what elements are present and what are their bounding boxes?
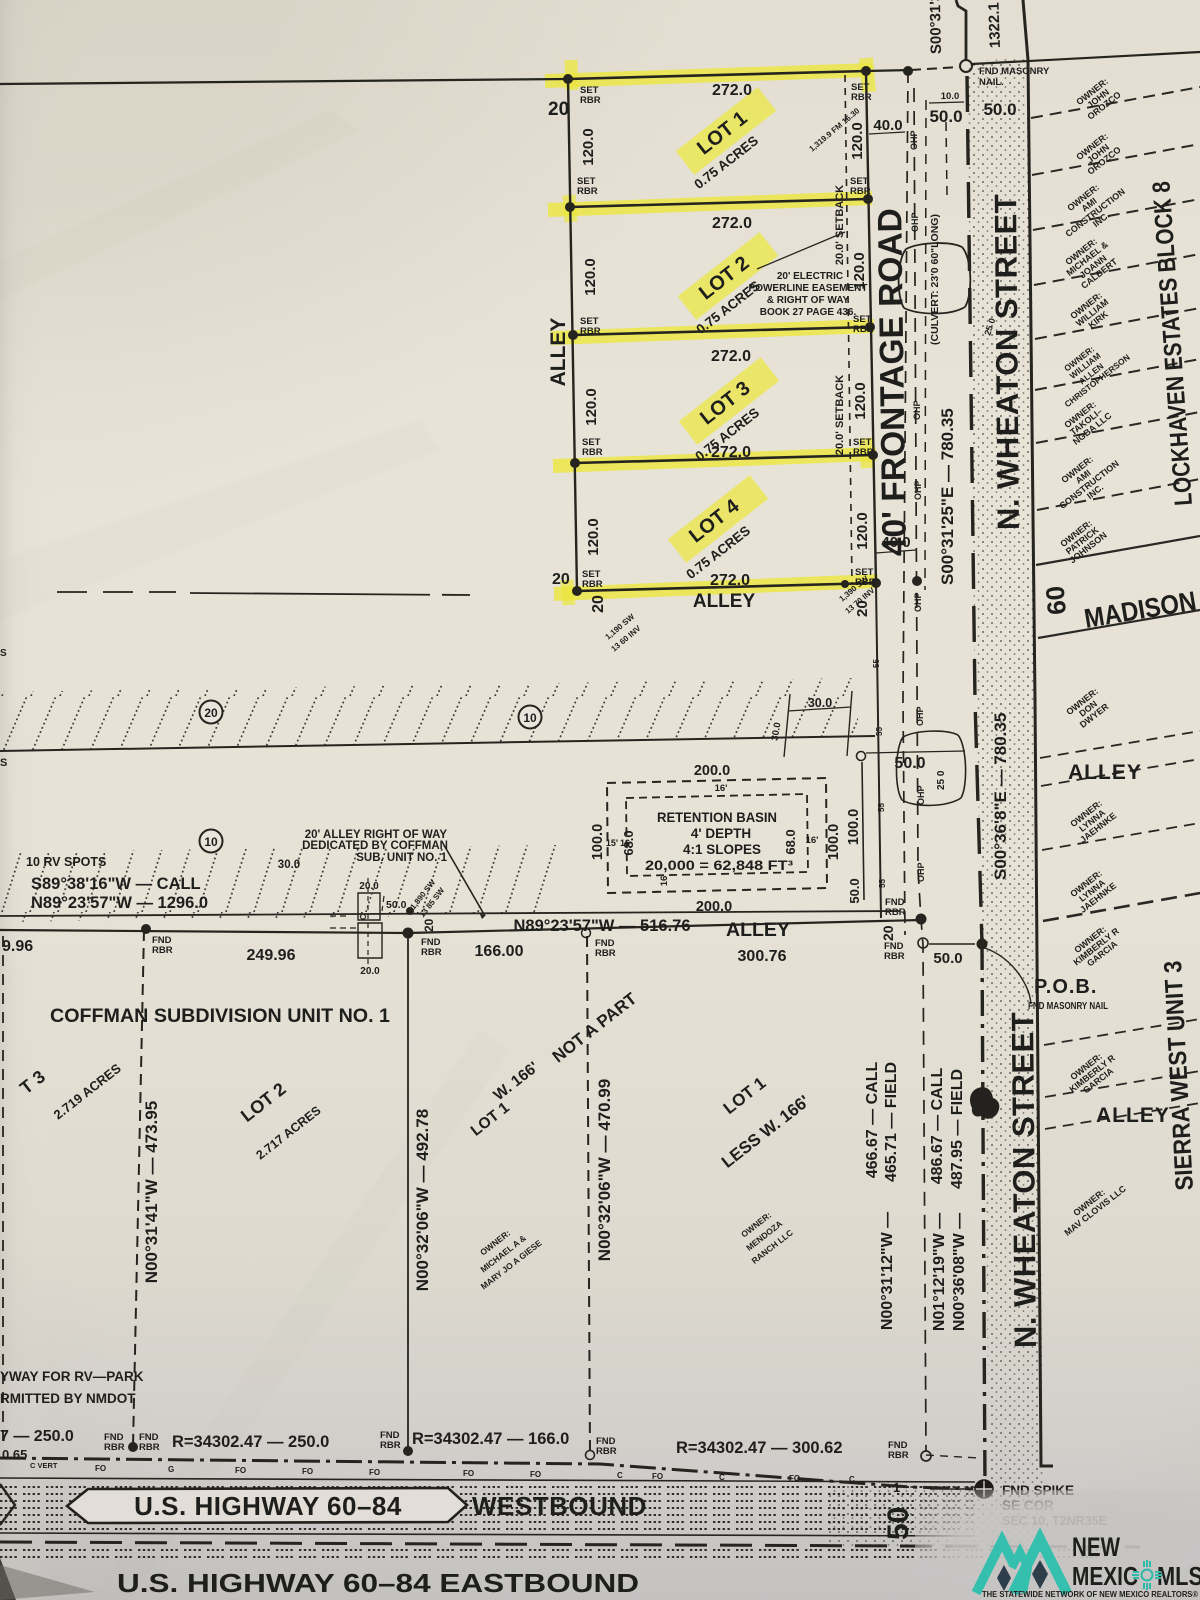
svg-text:120.0: 120.0: [583, 388, 600, 426]
svg-text:FO: FO: [530, 1470, 541, 1479]
svg-text:166.00: 166.00: [475, 943, 524, 960]
svg-text:G: G: [168, 1465, 174, 1474]
svg-text:N00°32'06"W — 492.78: N00°32'06"W — 492.78: [413, 1109, 432, 1291]
svg-text:20,000 = 62,848 FT³: 20,000 = 62,848 FT³: [645, 858, 794, 873]
svg-text:16': 16': [715, 783, 728, 794]
svg-text:272.0: 272.0: [712, 215, 752, 232]
svg-text:N00°32'06"W — 470.99: N00°32'06"W — 470.99: [595, 1079, 614, 1261]
svg-text:120.0: 120.0: [849, 122, 866, 160]
svg-text:20: 20: [552, 571, 570, 588]
svg-text:OHP: OHP: [915, 706, 925, 726]
svg-text:RBR: RBR: [582, 579, 603, 590]
svg-text:OHP: OHP: [909, 130, 919, 150]
svg-text:100.0: 100.0: [826, 824, 842, 860]
svg-text:272.0: 272.0: [711, 348, 751, 365]
svg-text:ALLEY: ALLEY: [726, 919, 790, 941]
svg-text:ALLEY: ALLEY: [693, 591, 756, 612]
svg-text:120.0: 120.0: [580, 128, 597, 166]
svg-text:20: 20: [880, 925, 896, 941]
svg-text:N00°31'41"W — 473.95: N00°31'41"W — 473.95: [142, 1101, 161, 1283]
svg-text:20.0' SETBACK: 20.0' SETBACK: [834, 375, 846, 455]
svg-text:55: 55: [878, 879, 887, 888]
svg-text:U.S. HIGHWAY 60–84 EASTBOUN: U.S. HIGHWAY 60–84 EASTBOUND: [117, 1568, 639, 1598]
svg-text:RBR: RBR: [596, 1446, 617, 1457]
svg-text:DEDICATED BY COFFMAN: DEDICATED BY COFFMAN: [302, 840, 448, 852]
svg-text:10.0: 10.0: [941, 91, 960, 102]
svg-text:RBR: RBR: [850, 186, 871, 197]
svg-text:C VERT: C VERT: [30, 1461, 58, 1470]
svg-text:20' ELECTRIC: 20' ELECTRIC: [777, 271, 843, 282]
svg-text:THE STATEWIDE NETWORK OF NEW M: THE STATEWIDE NETWORK OF NEW MEXICO REAL…: [982, 1589, 1199, 1599]
svg-text:RBR: RBR: [580, 95, 601, 106]
svg-text:RBR: RBR: [853, 324, 874, 335]
svg-text:FND MASONRY: FND MASONRY: [979, 66, 1050, 77]
svg-text:RBR: RBR: [139, 1442, 160, 1453]
svg-text:FO: FO: [95, 1464, 106, 1473]
svg-text:R=34302.47 — 250.0: R=34302.47 — 250.0: [172, 1433, 329, 1451]
svg-text:40.0: 40.0: [873, 117, 902, 134]
svg-text:N. WHEATON STREET: N. WHEATON STREET: [1005, 1012, 1043, 1349]
svg-text:RETENTION BASIN: RETENTION BASIN: [657, 809, 777, 825]
svg-text:50.0: 50.0: [386, 899, 407, 911]
svg-text:R=34302.47 — 300.62: R=34302.47 — 300.62: [676, 1439, 843, 1457]
svg-text:OHP: OHP: [913, 592, 923, 612]
svg-text:55: 55: [877, 803, 886, 812]
svg-text:1322.1: 1322.1: [985, 2, 1004, 48]
svg-text:FO: FO: [369, 1468, 380, 1477]
svg-text:N89°23'57"W — 1296.0: N89°23'57"W — 1296.0: [31, 894, 208, 912]
svg-text:20: 20: [854, 600, 871, 617]
svg-text:50.0: 50.0: [983, 100, 1016, 119]
svg-text:25 0: 25 0: [936, 770, 947, 790]
svg-text:465.71 — FIELD: 465.71 — FIELD: [883, 1062, 900, 1182]
svg-text:200.0: 200.0: [696, 899, 732, 915]
svg-text:OHP: OHP: [916, 862, 926, 882]
svg-text:N00°31'12"W —: N00°31'12"W —: [879, 1212, 896, 1330]
svg-text:N. WHEATON STREET: N. WHEATON STREET: [988, 194, 1026, 531]
svg-text:30.0: 30.0: [278, 859, 300, 871]
svg-text:20.0: 20.0: [360, 966, 380, 977]
svg-text:POWERLINE EASEMENT: POWERLINE EASEMENT: [749, 283, 868, 294]
svg-text:16: 16: [620, 838, 630, 848]
svg-text:4:1 SLOPES: 4:1 SLOPES: [683, 842, 761, 857]
svg-text:55: 55: [875, 727, 884, 736]
svg-text:S00°31'25"E — 780.35: S00°31'25"E — 780.35: [938, 408, 957, 585]
svg-text:FO: FO: [235, 1466, 246, 1475]
svg-text:NEW: NEW: [1072, 1532, 1120, 1562]
svg-text:ALLEY: ALLEY: [1068, 761, 1142, 784]
svg-text:FND MASONRY NAIL: FND MASONRY NAIL: [1028, 1000, 1108, 1012]
svg-text:0.65: 0.65: [2, 1447, 27, 1462]
svg-text:RBR: RBR: [421, 947, 442, 958]
svg-text:RBR: RBR: [853, 447, 874, 458]
svg-text:OHP: OHP: [912, 400, 922, 420]
svg-text:C: C: [617, 1471, 623, 1480]
svg-text:120.0: 120.0: [582, 258, 599, 296]
svg-text:RBR: RBR: [580, 326, 601, 337]
svg-text:20.0: 20.0: [359, 881, 379, 892]
svg-text:RBR: RBR: [582, 447, 603, 458]
svg-text:WESTBOUND: WESTBOUND: [472, 1491, 647, 1521]
svg-text:FO: FO: [652, 1472, 663, 1481]
svg-text:16: 16: [659, 876, 670, 887]
svg-text:R=34302.47 — 166.0: R=34302.47 — 166.0: [412, 1430, 569, 1448]
svg-text:U.S. HIGHWAY 60–84: U.S. HIGHWAY 60–84: [134, 1491, 402, 1521]
svg-text:BOOK 27 PAGE 436.: BOOK 27 PAGE 436.: [760, 307, 857, 318]
svg-text:S00°31'3: S00°31'3: [927, 0, 945, 54]
svg-text:55: 55: [872, 659, 881, 668]
svg-text:272.0: 272.0: [712, 82, 752, 99]
svg-text:RBR: RBR: [595, 948, 616, 959]
svg-text:N00°36'08"W —: N00°36'08"W —: [951, 1213, 968, 1331]
svg-text:30.0: 30.0: [808, 696, 832, 710]
svg-text:RBR: RBR: [152, 945, 173, 956]
svg-text:10: 10: [523, 711, 537, 725]
svg-text:40.0: 40.0: [881, 534, 910, 551]
svg-text:RBR: RBR: [577, 186, 598, 197]
svg-text:RBR: RBR: [885, 907, 906, 918]
svg-text:50.0: 50.0: [933, 950, 962, 967]
svg-text:20: 20: [548, 99, 569, 120]
svg-text:RBR: RBR: [888, 1450, 909, 1461]
svg-text:50.0: 50.0: [847, 878, 862, 903]
svg-text:272.0: 272.0: [710, 572, 750, 589]
svg-text:COFFMAN SUBDIVISION UNIT NO. 1: COFFMAN SUBDIVISION UNIT NO. 1: [50, 1005, 390, 1027]
svg-text:4' DEPTH: 4' DEPTH: [691, 826, 751, 841]
svg-text:60: 60: [1040, 585, 1072, 616]
svg-text:RBR: RBR: [104, 1442, 125, 1453]
svg-text:120.0: 120.0: [854, 512, 871, 550]
svg-text:RBR: RBR: [851, 92, 872, 103]
svg-text:MLS: MLS: [1157, 1561, 1200, 1591]
svg-text:RBR: RBR: [884, 951, 905, 962]
svg-text:40' FRONTAGE ROAD: 40' FRONTAGE ROAD: [871, 208, 914, 556]
svg-text:MEXIC: MEXIC: [1072, 1561, 1138, 1591]
svg-text:ALLEY: ALLEY: [547, 318, 570, 387]
svg-text:FO: FO: [789, 1474, 800, 1483]
svg-text:P.O.B.: P.O.B.: [1034, 976, 1097, 998]
svg-text:OHP: OHP: [910, 212, 920, 232]
svg-text:FO: FO: [302, 1467, 313, 1476]
svg-text:20.0' SETBACK: 20.0' SETBACK: [834, 185, 846, 265]
svg-text:20: 20: [422, 918, 436, 932]
svg-text:50.0: 50.0: [929, 107, 962, 126]
svg-text:10: 10: [204, 835, 218, 849]
svg-text:486.67 — CALL: 486.67 — CALL: [929, 1068, 946, 1185]
svg-text:S00°36'8"E — 780.35: S00°36'8"E — 780.35: [991, 713, 1010, 880]
svg-text:120.0: 120.0: [585, 518, 602, 556]
svg-text:100.0: 100.0: [846, 809, 862, 845]
svg-text:C: C: [719, 1473, 725, 1482]
svg-text:FO: FO: [463, 1469, 474, 1478]
svg-text:OHP: OHP: [916, 785, 926, 805]
svg-text:7 — 250.0: 7 — 250.0: [0, 1428, 74, 1445]
svg-text:200.0: 200.0: [694, 763, 730, 779]
svg-text:487.95 — FIELD: 487.95 — FIELD: [949, 1069, 966, 1189]
svg-text:100.0: 100.0: [590, 824, 606, 860]
svg-text:C: C: [849, 1475, 855, 1484]
svg-text:NAIL.: NAIL.: [979, 77, 1004, 88]
svg-text:S: S: [0, 757, 7, 769]
svg-text:S89°38'16"W — CALL: S89°38'16"W — CALL: [31, 875, 201, 893]
svg-text:(CULVERT: 23'0 60"LONG): (CULVERT: 23'0 60"LONG): [929, 214, 941, 345]
svg-text:466.67 — CALL: 466.67 — CALL: [864, 1062, 881, 1179]
svg-text:N01°12'19"W —: N01°12'19"W —: [931, 1213, 948, 1331]
svg-text:249.96: 249.96: [247, 947, 296, 964]
svg-text:SUB. UNIT NO. 1: SUB. UNIT NO. 1: [356, 852, 447, 864]
svg-text:& RIGHT OF WAY: & RIGHT OF WAY: [767, 295, 850, 306]
svg-text:10 RV SPOTS: 10 RV SPOTS: [26, 855, 106, 869]
svg-text:1: 1: [893, 1480, 900, 1495]
svg-text:RMITTED BY NMDOT: RMITTED BY NMDOT: [0, 1391, 136, 1406]
svg-text:20: 20: [204, 706, 218, 720]
svg-text:ALLEY: ALLEY: [1096, 1104, 1170, 1127]
svg-text:YWAY FOR RV—PARK: YWAY FOR RV—PARK: [0, 1369, 144, 1384]
svg-text:N89°23'57"W — 516.76: N89°23'57"W — 516.76: [513, 917, 690, 935]
svg-text:20: 20: [590, 595, 607, 613]
svg-text:272.0: 272.0: [711, 444, 751, 461]
svg-text:C: C: [358, 914, 368, 920]
svg-text:15': 15': [606, 838, 618, 848]
svg-text:68.0: 68.0: [783, 829, 798, 854]
svg-text:120.0: 120.0: [852, 382, 869, 420]
svg-text:OHP: OHP: [913, 480, 923, 500]
svg-text:16': 16': [806, 835, 819, 846]
svg-text:300.76: 300.76: [738, 948, 787, 965]
svg-text:50: 50: [882, 1507, 915, 1540]
svg-text:9.96: 9.96: [2, 938, 33, 955]
svg-text:50.0: 50.0: [894, 755, 925, 772]
svg-text:RBR: RBR: [380, 1440, 401, 1451]
svg-text:S: S: [0, 648, 7, 659]
